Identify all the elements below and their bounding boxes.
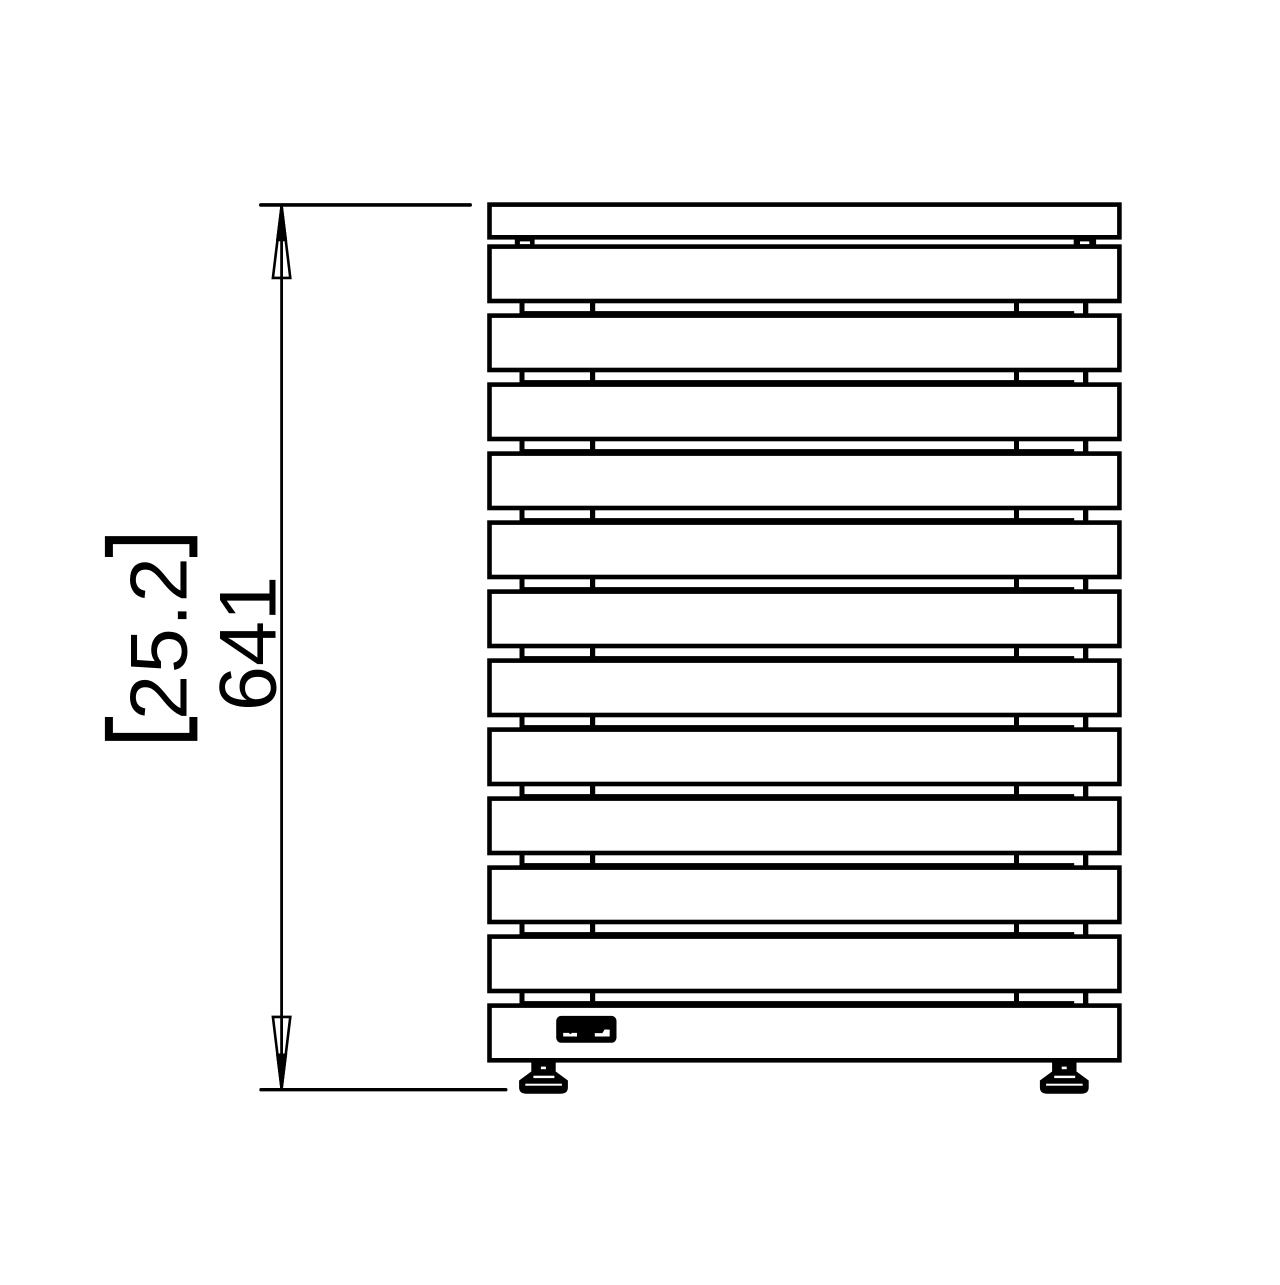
svg-text:641: 641 [203,576,293,711]
svg-text:25.2: 25.2 [115,556,205,720]
